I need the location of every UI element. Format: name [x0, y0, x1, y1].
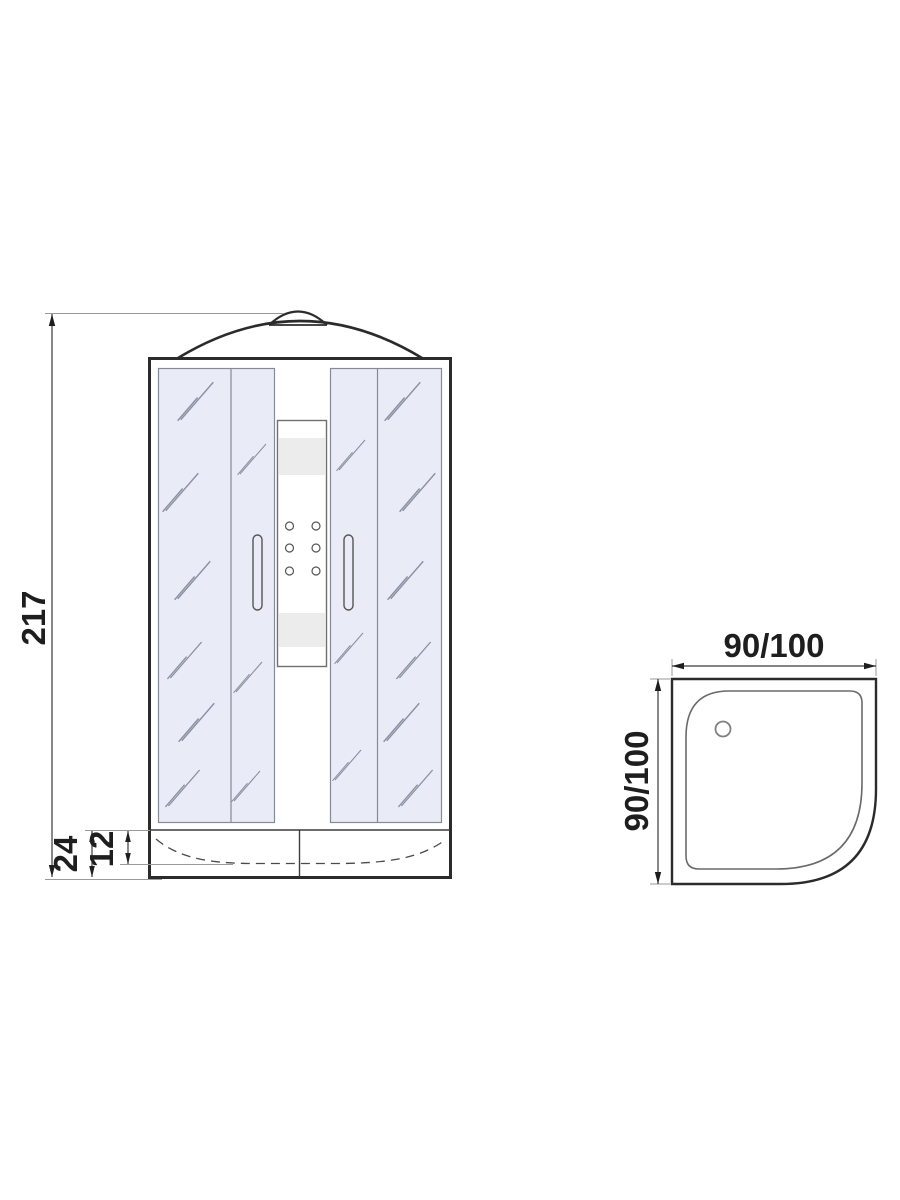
shower-column — [278, 421, 327, 667]
right-glass-doors — [331, 369, 442, 823]
dimension-tray-inner-depth: 12 — [83, 831, 233, 868]
top-view: 90/100 90/100 — [618, 627, 876, 884]
column-top-band — [279, 438, 325, 475]
dim-label-overall-height: 217 — [15, 590, 52, 645]
shower-tray-front — [150, 830, 450, 877]
dim-label-tray-depth: 90/100 — [618, 731, 655, 832]
dim-label-tray-height: 24 — [47, 835, 84, 872]
column-bottom-band — [279, 613, 325, 647]
shower-cabin-technical-drawing: 217 24 12 90/100 — [0, 0, 900, 1200]
tray-inner-basin — [686, 691, 862, 869]
front-view: 217 24 12 — [15, 312, 451, 880]
drawing-svg: 217 24 12 90/100 — [0, 0, 900, 1200]
dim-label-tray-inner-depth: 12 — [83, 831, 120, 868]
dimension-tray-depth: 90/100 — [618, 679, 670, 884]
dome-roof — [178, 321, 422, 358]
dimension-tray-width: 90/100 — [672, 627, 876, 676]
dim-label-tray-width: 90/100 — [724, 627, 825, 664]
tray-hidden-contour — [156, 839, 445, 864]
left-glass-doors — [159, 369, 275, 823]
drain-circle — [716, 722, 731, 737]
